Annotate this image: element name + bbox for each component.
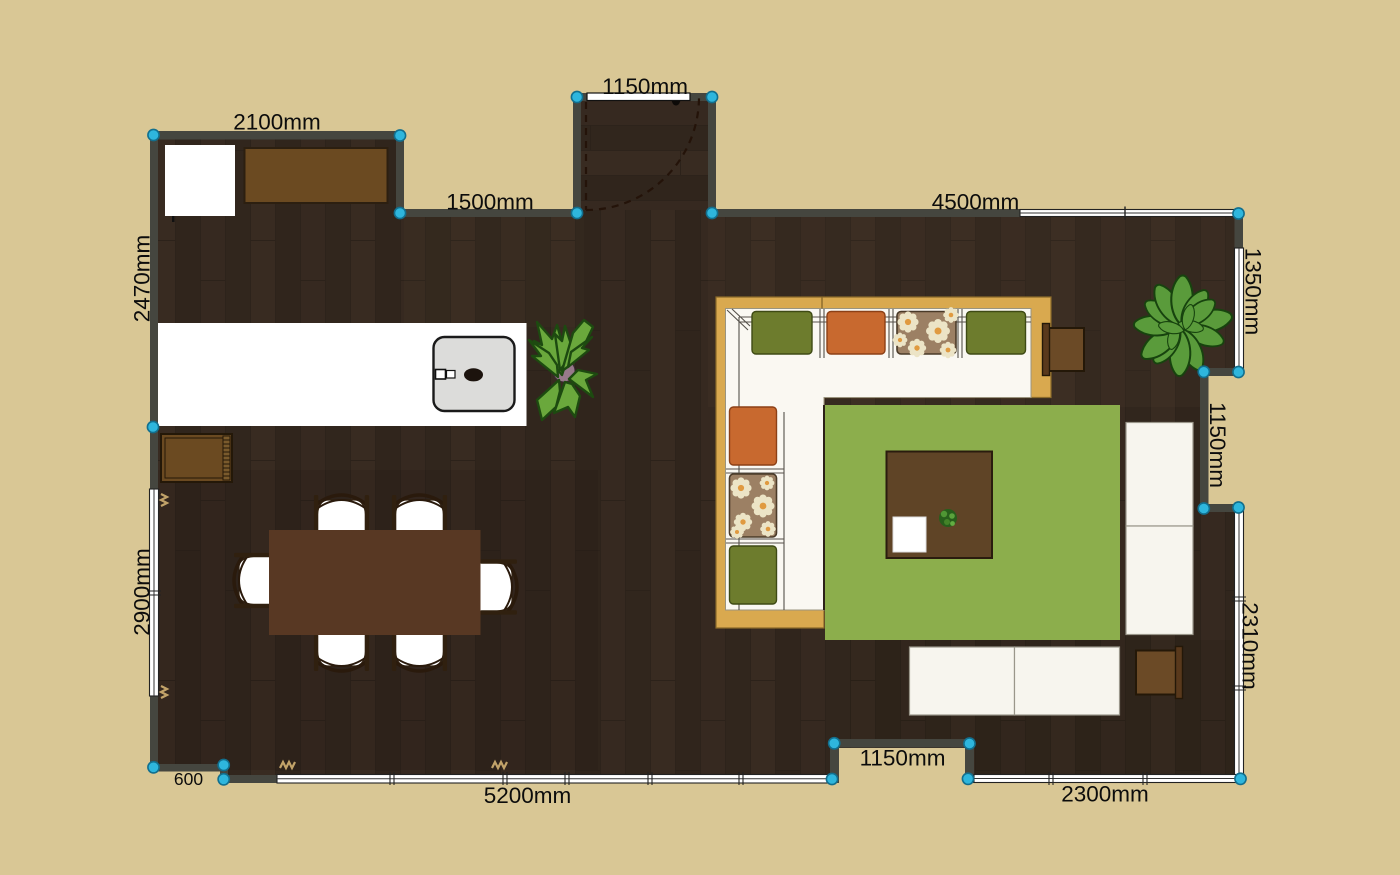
svg-text:2470mm: 2470mm — [130, 235, 155, 323]
svg-text:5200mm: 5200mm — [484, 783, 572, 808]
svg-text:2900mm: 2900mm — [130, 548, 155, 636]
svg-text:1500mm: 1500mm — [446, 190, 534, 215]
svg-text:4500mm: 4500mm — [932, 190, 1020, 215]
svg-text:1150mm: 1150mm — [602, 74, 688, 99]
svg-text:1350mm: 1350mm — [1241, 248, 1266, 336]
svg-text:1150mm: 1150mm — [860, 746, 946, 771]
svg-text:2310mm: 2310mm — [1238, 602, 1263, 690]
svg-text:1150mm: 1150mm — [1205, 402, 1230, 488]
svg-text:2100mm: 2100mm — [233, 110, 321, 135]
svg-text:2300mm: 2300mm — [1061, 782, 1149, 807]
svg-text:600: 600 — [174, 769, 203, 789]
